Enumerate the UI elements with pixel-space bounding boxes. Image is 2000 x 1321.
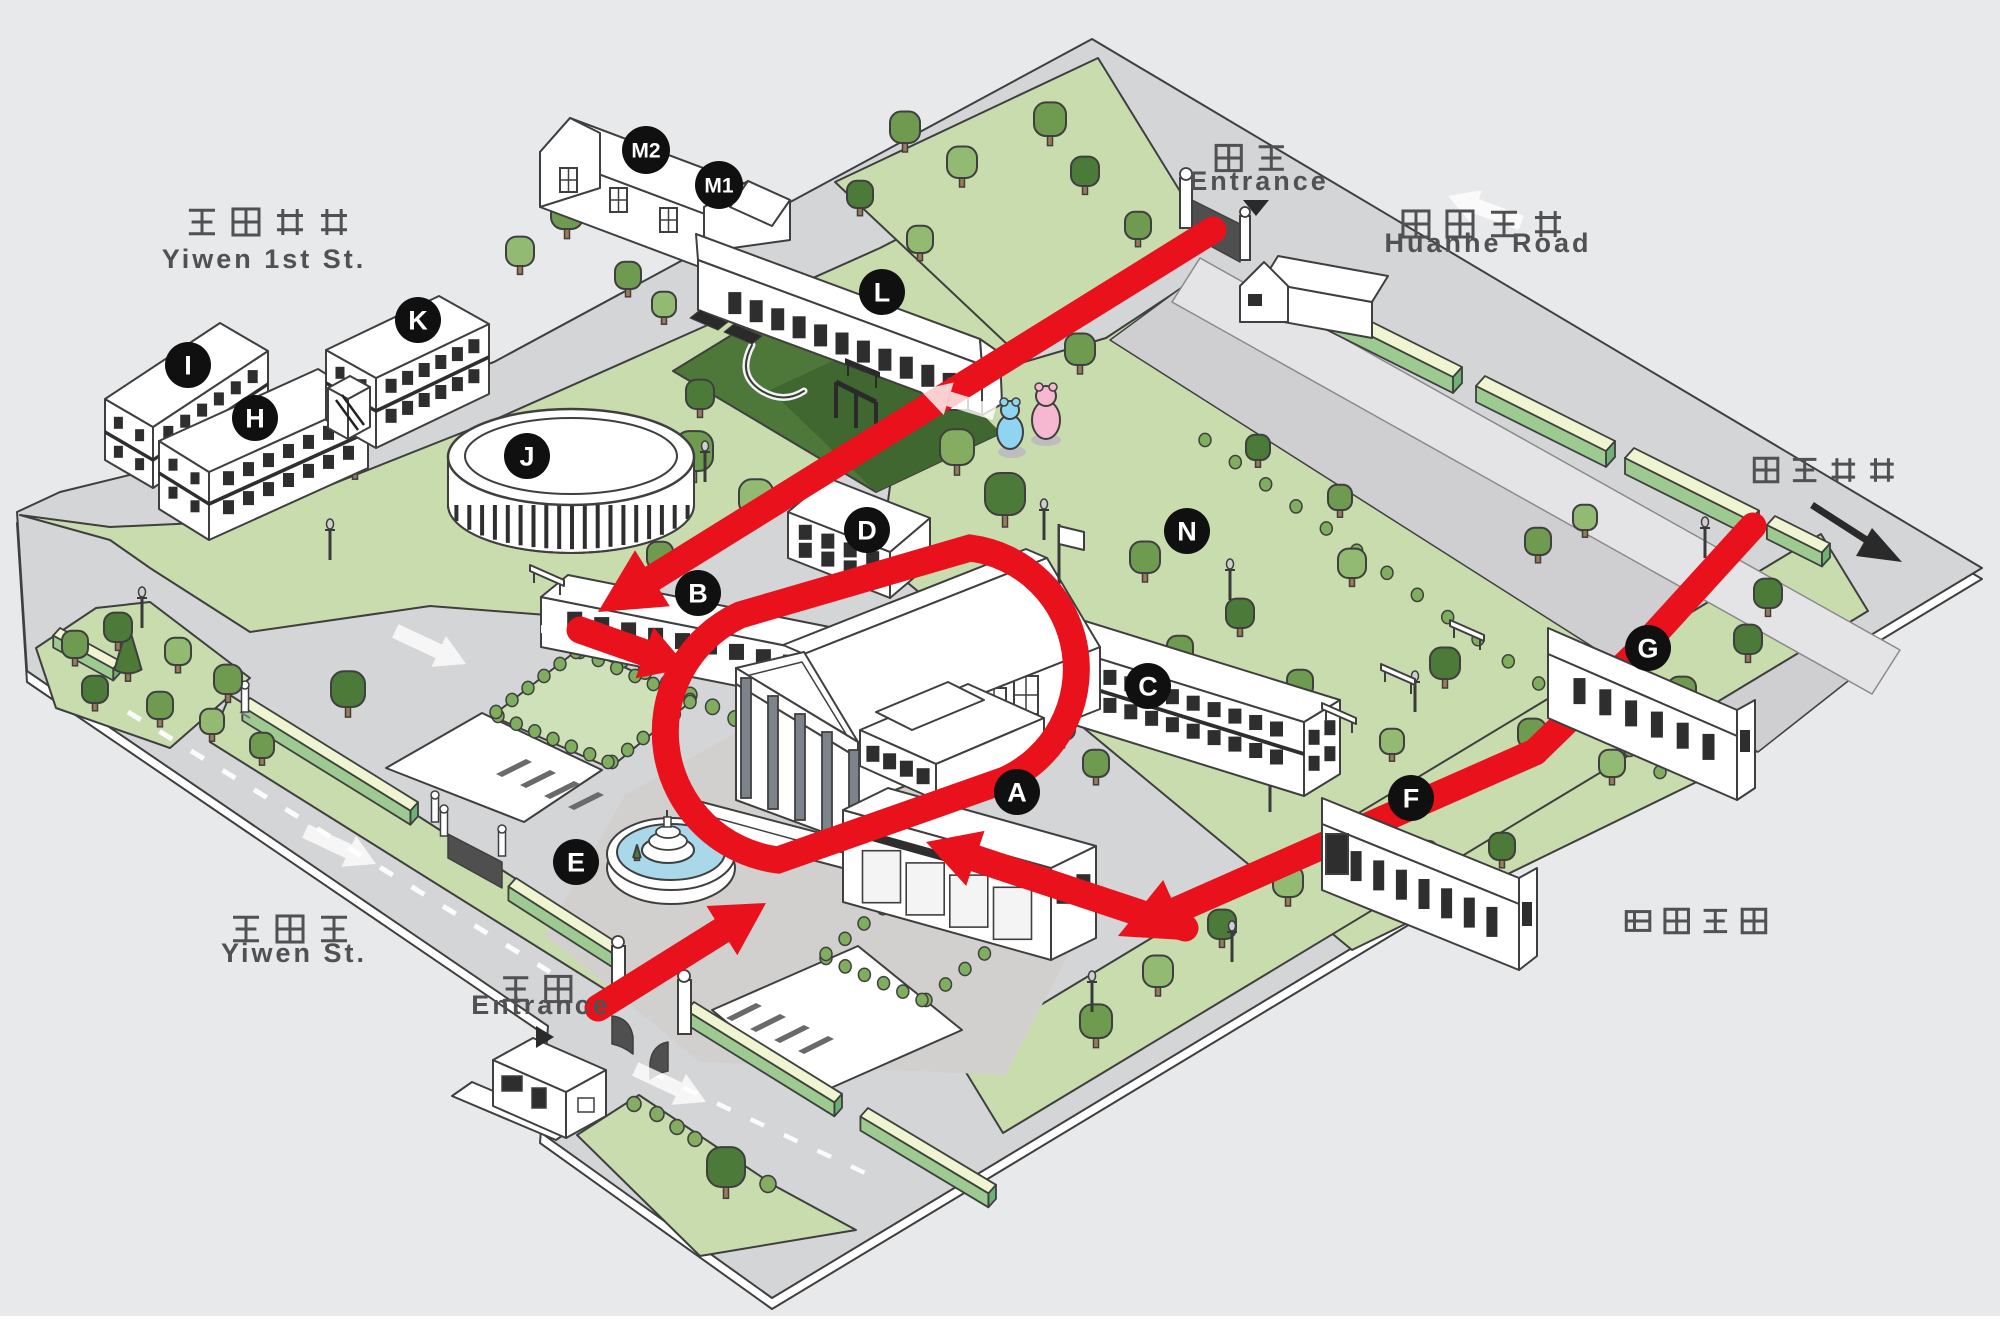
svg-text:K: K [408, 306, 428, 336]
svg-text:J: J [519, 442, 534, 472]
svg-text:Entrance: Entrance [1189, 166, 1329, 196]
svg-text:A: A [1007, 778, 1027, 808]
svg-text:L: L [874, 278, 891, 308]
svg-text:Huanhe Road: Huanhe Road [1384, 228, 1591, 258]
svg-text:N: N [1177, 517, 1197, 547]
svg-text:I: I [184, 351, 192, 381]
svg-text:G: G [1637, 634, 1658, 664]
svg-text:D: D [857, 516, 877, 546]
svg-text:Yiwen St.: Yiwen St. [221, 938, 367, 968]
svg-text:E: E [567, 848, 585, 878]
svg-text:H: H [245, 404, 265, 434]
svg-text:Yiwen 1st St.: Yiwen 1st St. [162, 244, 367, 274]
svg-text:C: C [1138, 672, 1158, 702]
svg-text:M1: M1 [704, 175, 733, 198]
svg-text:Entrance: Entrance [471, 990, 611, 1020]
svg-text:F: F [1403, 784, 1420, 814]
svg-text:M2: M2 [631, 140, 660, 163]
svg-text:B: B [688, 579, 708, 609]
